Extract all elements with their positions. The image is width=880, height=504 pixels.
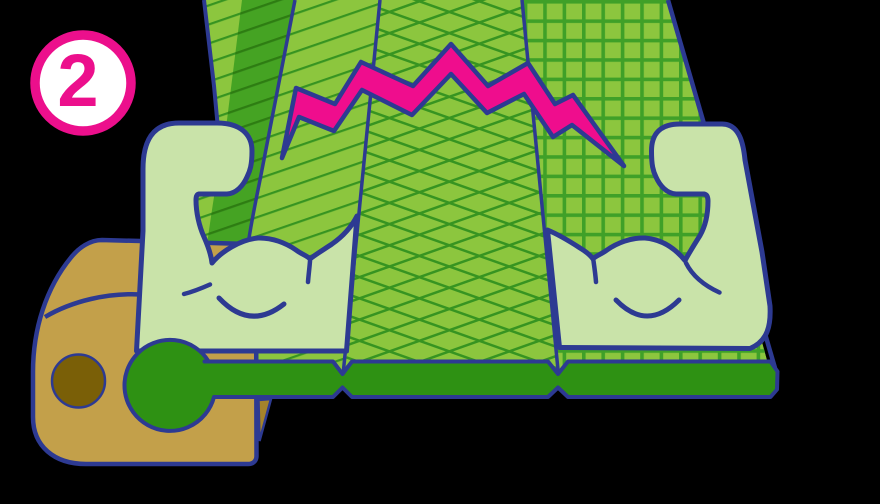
svg-text:2: 2 <box>57 39 98 122</box>
